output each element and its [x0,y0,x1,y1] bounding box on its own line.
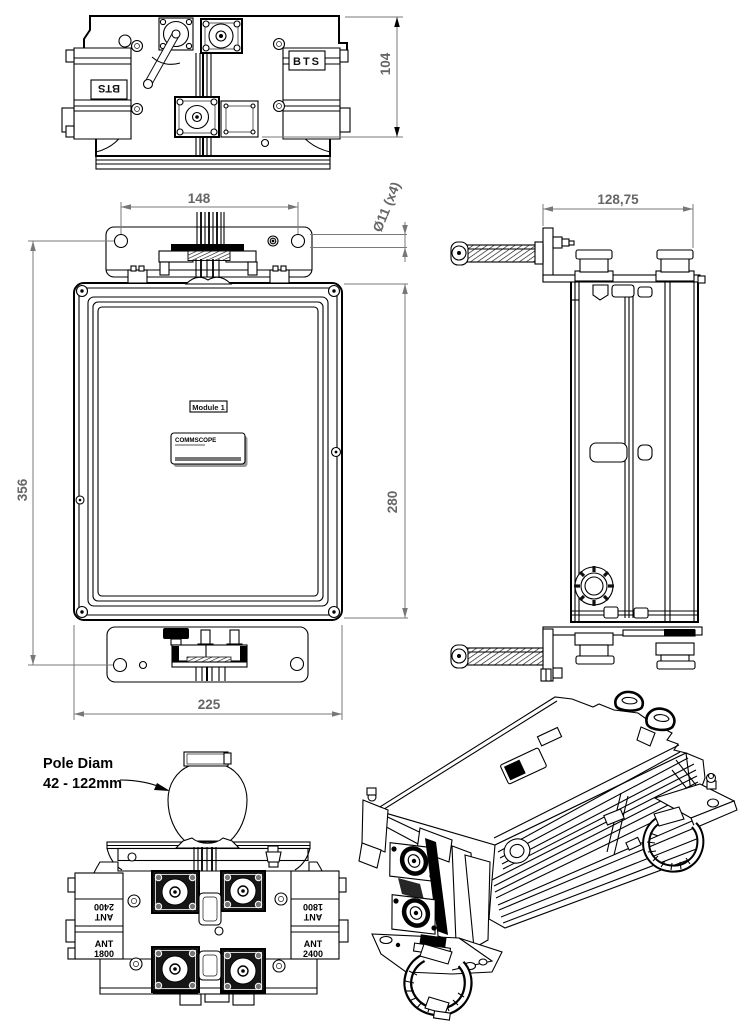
svg-text:2400: 2400 [94,902,114,912]
svg-text:Module 1: Module 1 [192,403,225,412]
svg-text:BTS: BTS [293,56,321,68]
svg-text:280: 280 [385,491,400,514]
svg-text:104: 104 [378,52,393,75]
svg-text:1800: 1800 [94,949,114,959]
svg-text:ANT: ANT [304,939,323,949]
svg-text:ANT: ANT [95,939,114,949]
svg-text:ANT: ANT [303,912,322,922]
svg-text:225: 225 [198,697,221,712]
svg-text:2400: 2400 [303,949,323,959]
svg-text:ANT: ANT [94,912,113,922]
svg-text:42 - 122mm: 42 - 122mm [43,776,122,792]
svg-text:BTS: BTS [98,82,120,94]
svg-text:Pole Diam: Pole Diam [43,756,113,772]
svg-text:148: 148 [188,191,211,206]
svg-text:COMMSCOPE: COMMSCOPE [175,437,216,444]
svg-text:1800: 1800 [303,902,323,912]
svg-text:356: 356 [15,478,30,501]
svg-text:128,75: 128,75 [597,192,639,207]
